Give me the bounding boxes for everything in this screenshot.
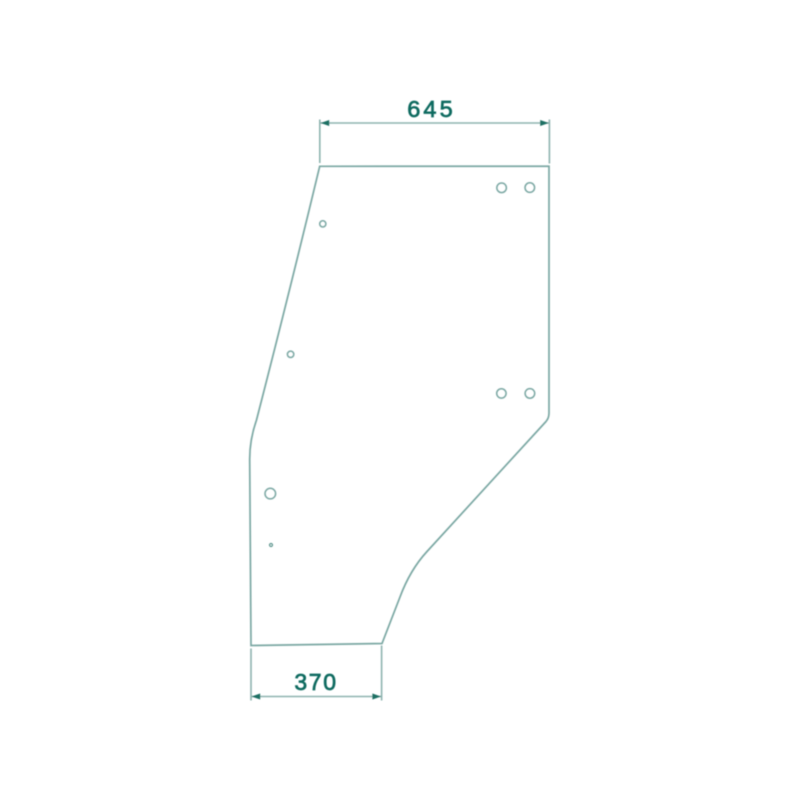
svg-text:645: 645	[407, 96, 456, 122]
svg-text:370: 370	[294, 669, 337, 695]
